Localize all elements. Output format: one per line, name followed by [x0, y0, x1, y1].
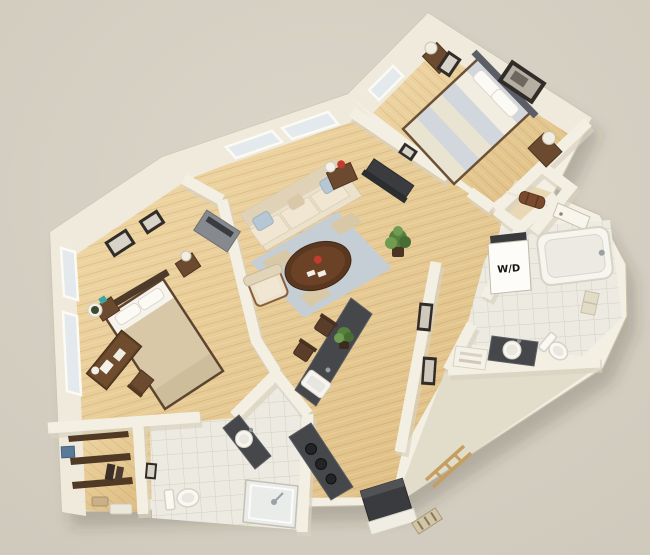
burner [306, 444, 317, 455]
wall-closet-divider [138, 424, 143, 514]
bathtub [536, 226, 614, 286]
plant-foliage [344, 332, 354, 342]
plant-foliage [334, 333, 344, 343]
bathroom2-wall-art [145, 463, 157, 480]
tub-inner [544, 234, 606, 279]
sink-basin [239, 434, 249, 444]
faucet [249, 428, 253, 432]
storage-bin [61, 446, 75, 458]
table-lamp [181, 251, 191, 261]
sink-basin [507, 345, 518, 356]
bin [61, 446, 75, 458]
plant-foliage [393, 226, 403, 236]
bedroom2-window-low [63, 312, 81, 395]
bedroom2-window-high [61, 248, 78, 300]
table-lamp [425, 42, 437, 54]
burner [326, 474, 336, 484]
floorplan-svg: W/D [0, 0, 650, 555]
hall-wall-art-1 [417, 302, 434, 331]
white-basket [110, 504, 132, 514]
toilet-tank [164, 489, 175, 510]
planter-foliage [91, 306, 99, 314]
plant-foliage [385, 237, 397, 249]
towel-shelf [453, 346, 488, 370]
faucet [326, 368, 331, 373]
hall-wall-art-2 [421, 357, 437, 386]
table-lamp [543, 132, 556, 145]
basket [92, 497, 108, 506]
plant-foliage [399, 236, 411, 248]
floorplan-image: W/D [0, 0, 650, 555]
washer-dryer-label: W/D [497, 263, 521, 276]
door-knob [559, 212, 563, 216]
art-mat [424, 360, 435, 383]
art-mat [147, 465, 155, 478]
faucet [517, 339, 521, 343]
burner [316, 459, 327, 470]
